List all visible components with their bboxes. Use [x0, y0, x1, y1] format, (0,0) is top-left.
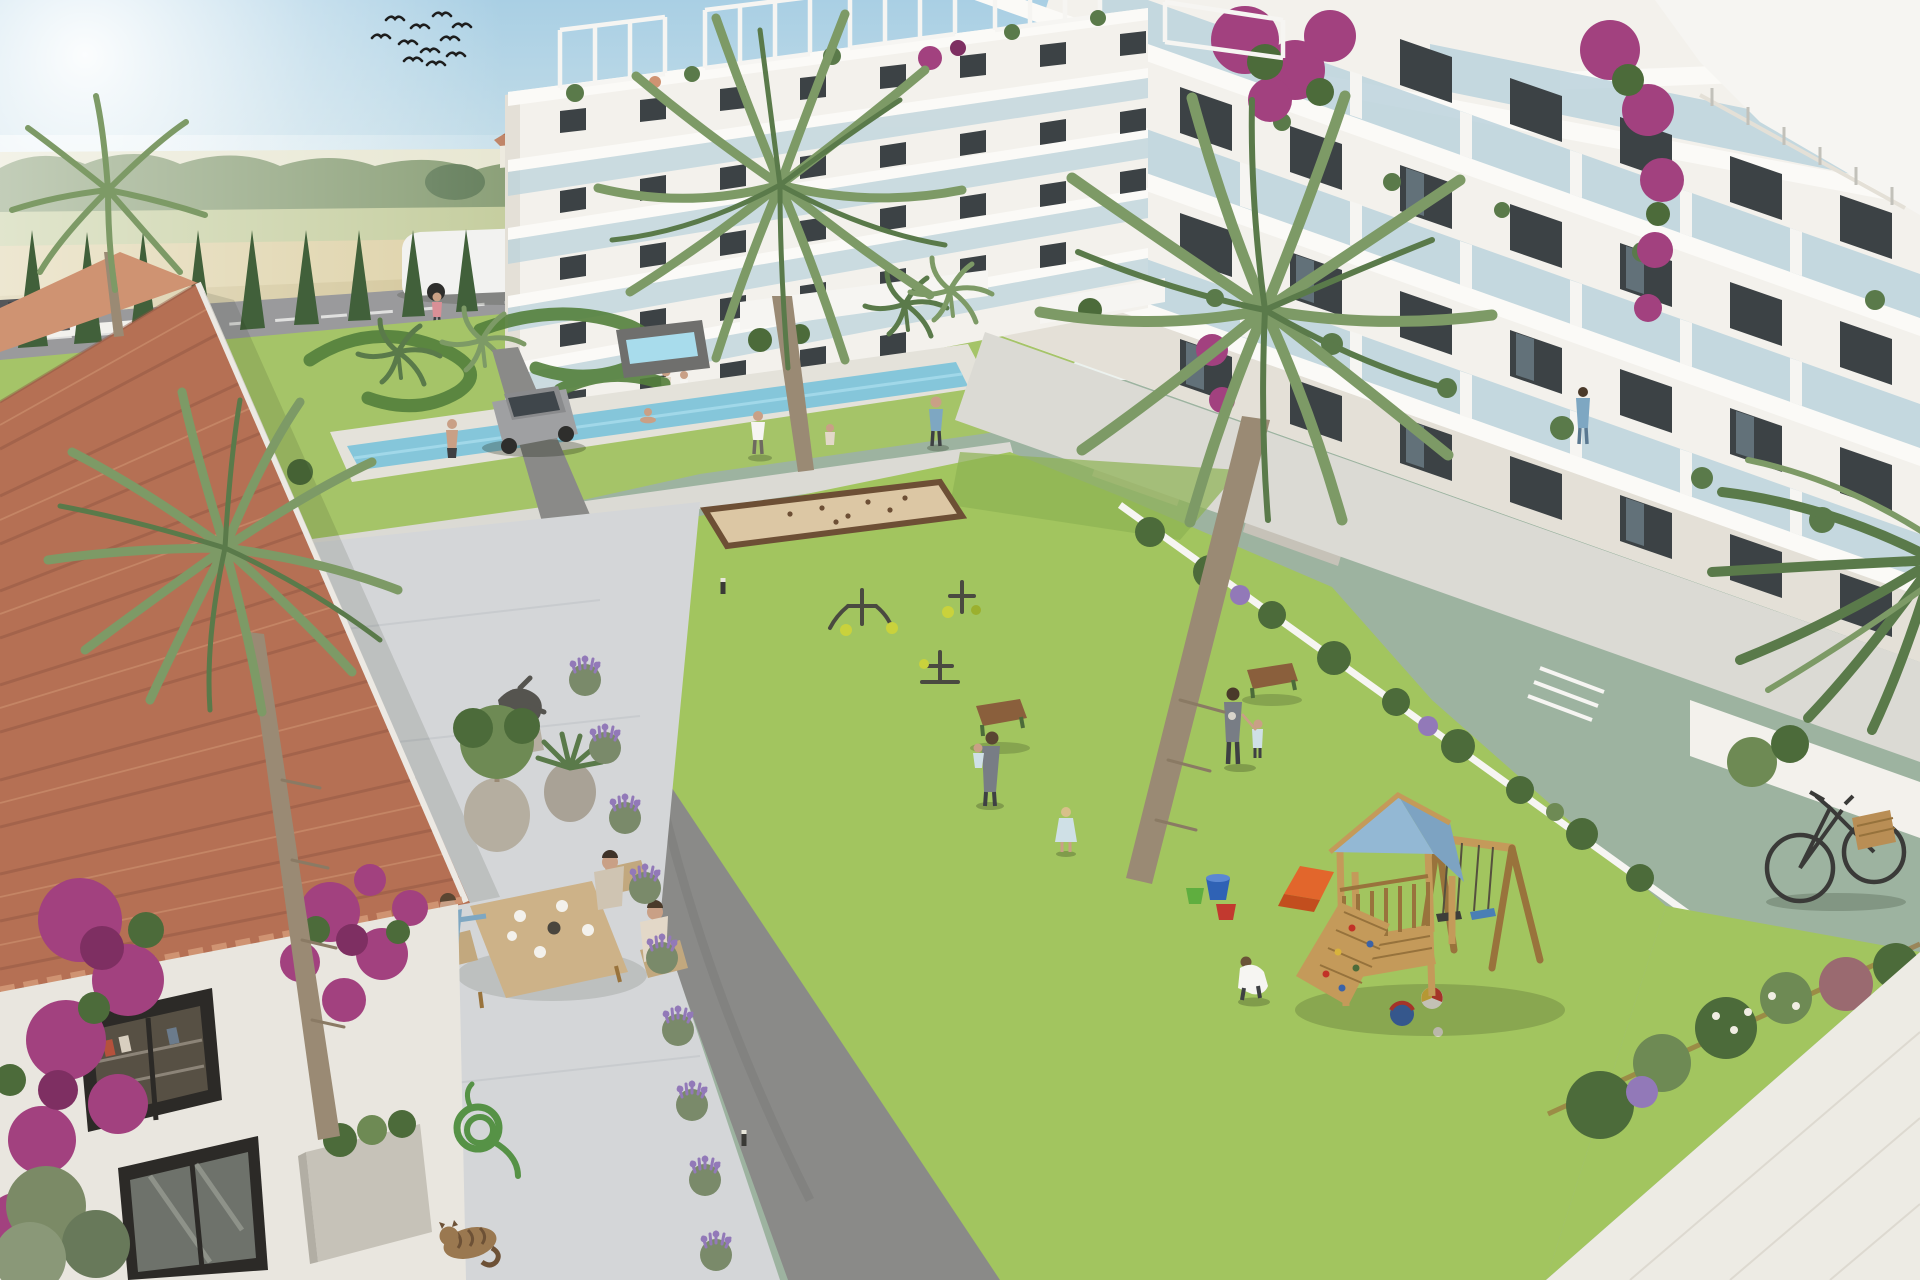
person-lawn-child [825, 424, 835, 445]
render-image: Aerial 3D architectural render of a Medi… [0, 0, 1920, 1280]
teapot [548, 922, 561, 935]
terrace-steps [1528, 668, 1604, 720]
bollard-light [721, 578, 726, 594]
pool-bather [446, 419, 458, 458]
bollard-light [742, 1130, 747, 1146]
scene-canvas [0, 0, 1920, 1280]
